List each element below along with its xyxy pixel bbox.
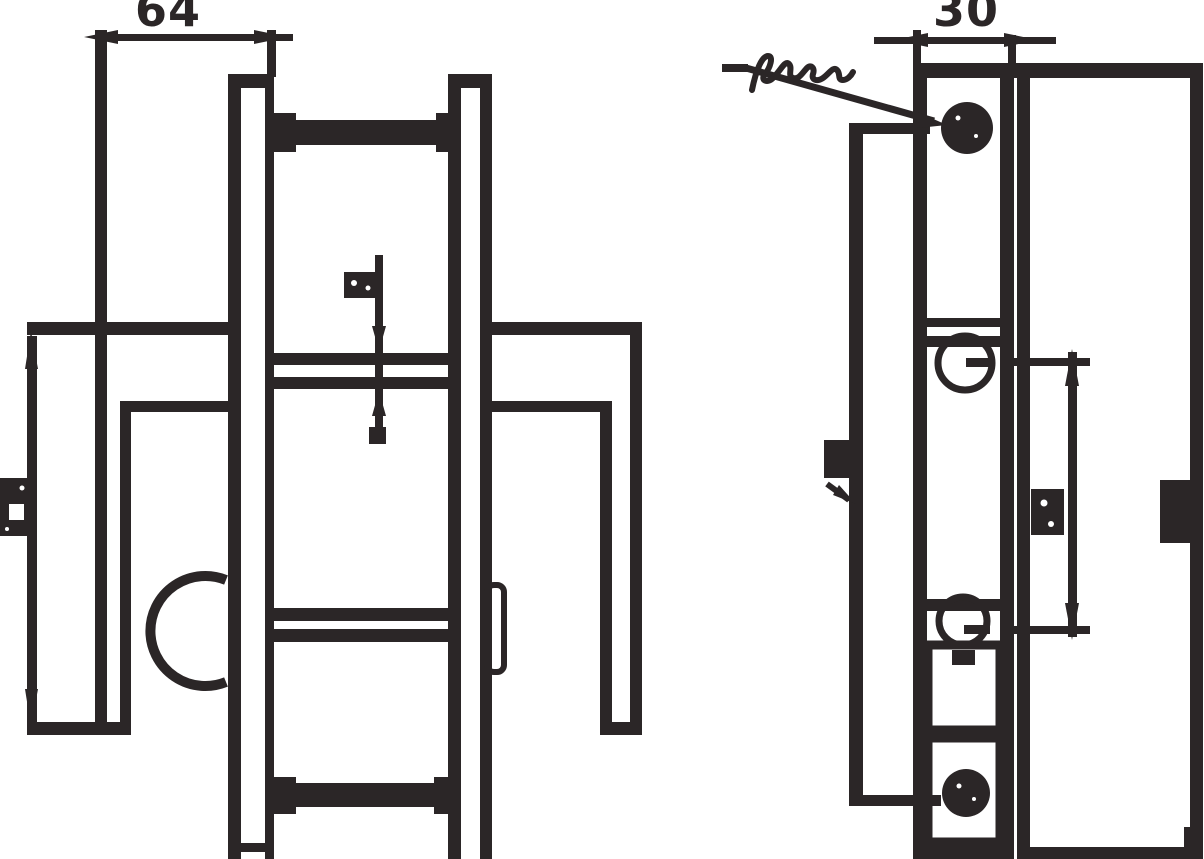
front-rail-gap-dimension	[344, 255, 386, 444]
top-edge	[913, 63, 1203, 78]
latch-block	[1160, 480, 1191, 543]
side-hole-spacing-text-blob	[1031, 489, 1064, 535]
right-edge-slot	[487, 585, 504, 672]
bottom-crossbar	[272, 777, 458, 814]
front-view: 64	[0, 0, 642, 859]
side-top-depth-value: 30	[933, 0, 999, 37]
right-bracket-arm	[480, 322, 642, 735]
left-mounting-plate	[228, 74, 274, 859]
front-height-dimension-text-blob	[0, 478, 35, 536]
front-top-width-dimension: 64	[84, 0, 293, 77]
drawing-page: 64	[0, 0, 1204, 859]
left-bracket-arm	[27, 322, 240, 735]
upper-rails	[274, 353, 448, 389]
lower-window	[928, 645, 1000, 730]
lower-rails	[274, 608, 448, 642]
side-view: 30	[722, 0, 1203, 859]
top-screw-head	[941, 102, 993, 154]
front-top-width-value: 64	[135, 0, 201, 37]
right-mounting-plate	[448, 74, 492, 859]
bottom-screw-head	[942, 769, 990, 817]
front-height-dimension	[0, 331, 38, 727]
drawing-canvas: 64	[0, 0, 1204, 859]
front-rail-gap-text-blob	[344, 272, 378, 298]
outer-profile-line	[95, 30, 107, 735]
door-panel	[1017, 63, 1203, 859]
top-crossbar	[272, 113, 458, 152]
handle-arc	[150, 576, 226, 686]
